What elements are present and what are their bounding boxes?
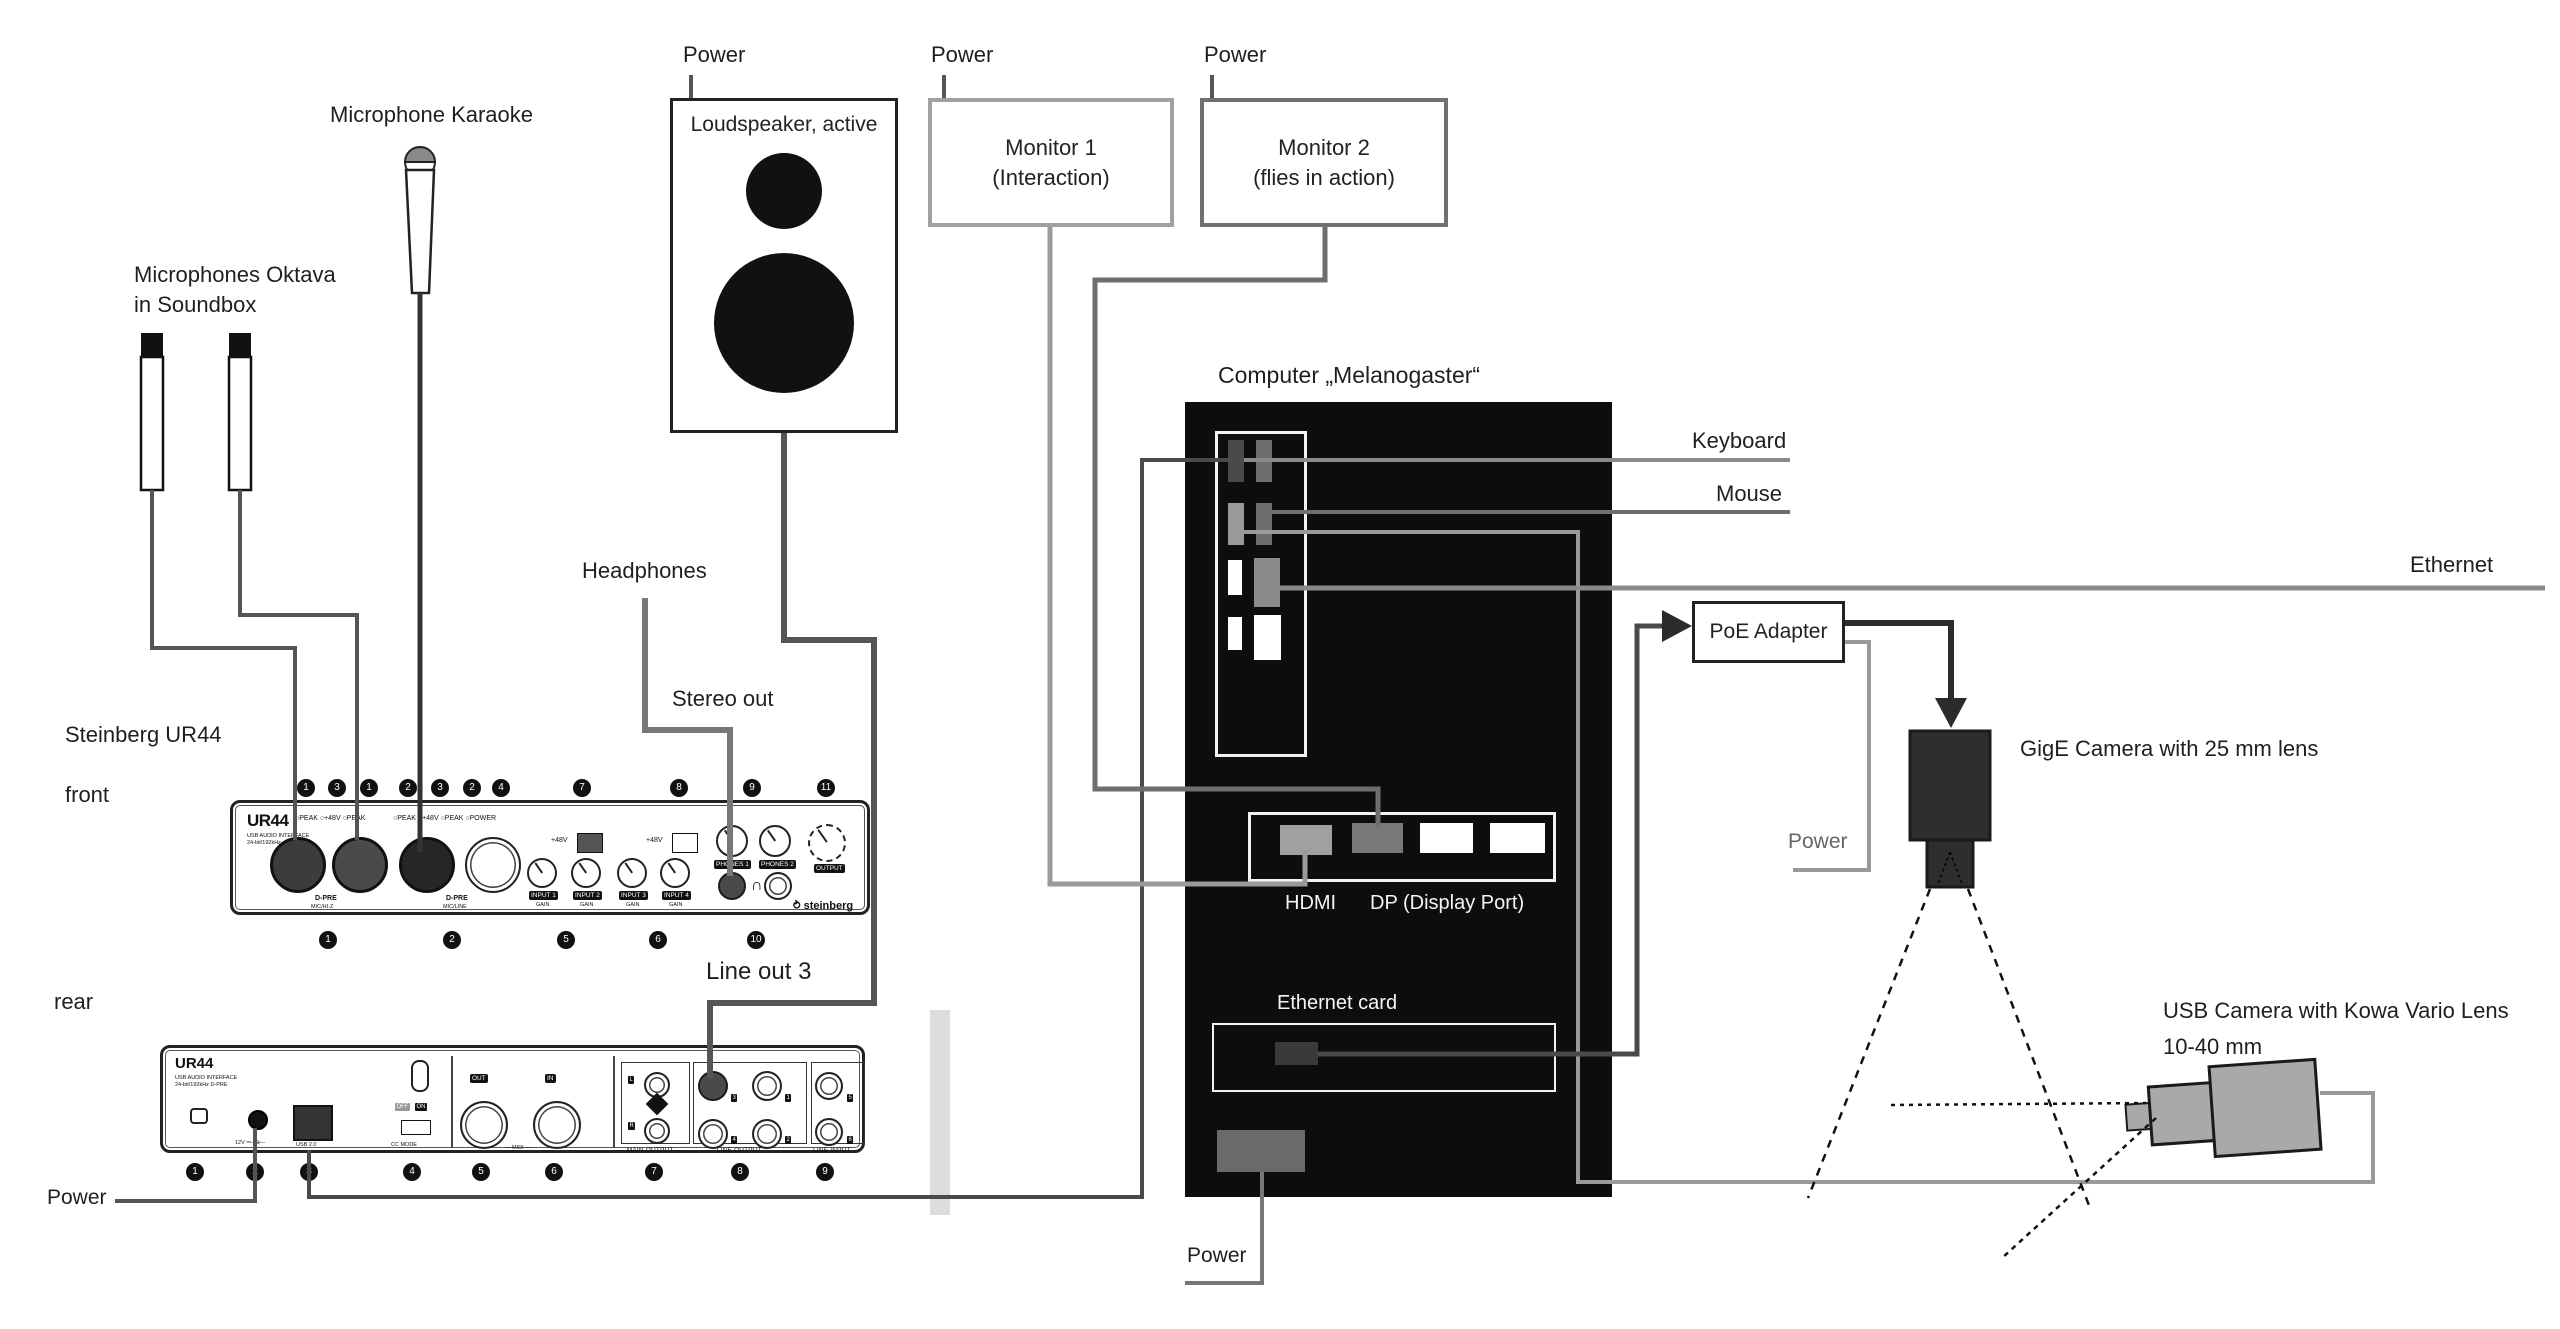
callout-front-top-6: 2 — [463, 779, 481, 797]
io-port-3a — [1228, 560, 1242, 595]
ethernet-card-port — [1275, 1042, 1318, 1065]
ccmode-off-tag: OFF — [395, 1103, 410, 1111]
gain4-label: GAIN — [669, 902, 682, 908]
label-stereo-out: Stereo out — [672, 686, 774, 712]
label-power-ur44: Power — [47, 1186, 107, 1210]
input2-gain-knob[interactable] — [571, 858, 601, 888]
phones2-tag: PHONES 2 — [759, 860, 796, 869]
callout-front-top-9: 8 — [670, 779, 688, 797]
label-ethernet-card: Ethernet card — [1277, 992, 1397, 1015]
main-l-tag: L — [628, 1076, 634, 1084]
callout-rear-5: 5 — [472, 1163, 490, 1181]
callout-front-top-10: 9 — [743, 779, 761, 797]
gige-camera — [1910, 731, 1990, 887]
input1-gain-knob[interactable] — [527, 858, 557, 888]
callout-rear-4: 4 — [403, 1163, 421, 1181]
label-dp: DP (Display Port) — [1370, 892, 1524, 915]
callout-front-top-5: 3 — [431, 779, 449, 797]
label-power-poe: Power — [1788, 830, 1848, 854]
input3-tag: INPUT 3 — [619, 891, 648, 900]
monitor2-box: Monitor 2 (flies in action) — [1200, 98, 1448, 227]
loudspeaker-label: Loudspeaker, active — [691, 113, 878, 137]
label-power-monitor1: Power — [931, 42, 993, 68]
phones1-tag: PHONES 1 — [714, 860, 751, 869]
monitor1-box: Monitor 1 (Interaction) — [928, 98, 1174, 227]
gpu-port-4 — [1490, 823, 1545, 853]
line-input-5-tag: 5 — [847, 1094, 853, 1102]
line-input-6-tag: 6 — [847, 1136, 853, 1144]
line-output-4[interactable] — [698, 1119, 728, 1149]
label-gige-camera: GigE Camera with 25 mm lens — [2020, 736, 2318, 762]
monitor2-line1: Monitor 2 — [1278, 133, 1370, 163]
label-power-speaker: Power — [683, 42, 745, 68]
headphone-glyph-icon: ∩ — [751, 877, 763, 895]
usbcam-axis-dotted — [1891, 1103, 2146, 1105]
rear-divider-2 — [613, 1056, 615, 1148]
callout-rear-6: 6 — [545, 1163, 563, 1181]
cable-mic1-to-xlr1 — [152, 490, 295, 840]
callout-front-top-4: 2 — [399, 779, 417, 797]
callout-front-bottom-2: 2 — [443, 931, 461, 949]
label-computer: Computer „Melanogaster“ — [1218, 362, 1480, 389]
front-brand-sub2: 24-bit/192kHz — [247, 840, 281, 846]
callout-rear-7: 7 — [645, 1163, 663, 1181]
cable-poe-to-gige — [1845, 623, 1951, 700]
label-mic-oktava-line2: in Soundbox — [134, 292, 256, 318]
rear-power-button[interactable] — [190, 1108, 208, 1124]
line-output-label: — LINE OUTPUT — — [708, 1147, 770, 1154]
rear-brand: UR44 — [175, 1055, 213, 1072]
label-power-monitor2: Power — [1204, 42, 1266, 68]
callout-front-top-2: 3 — [328, 779, 346, 797]
poe-adapter-box: PoE Adapter — [1692, 601, 1845, 663]
input4-tag: INPUT 4 — [662, 891, 691, 900]
dc-jack[interactable] — [248, 1110, 268, 1130]
gain3-label: GAIN — [626, 902, 639, 908]
usb-port-2a-camera — [1228, 503, 1244, 545]
line-output-2-tag: 2 — [785, 1136, 791, 1144]
arrowhead-into-poe — [1662, 610, 1692, 642]
callout-rear-1: 1 — [186, 1163, 204, 1181]
callout-front-bottom-1: 1 — [319, 931, 337, 949]
input4-gain-knob[interactable] — [660, 858, 690, 888]
dp-port — [1352, 823, 1403, 853]
main-output-label: — MAIN OUTPUT — — [618, 1147, 682, 1154]
oktava-mic-2 — [229, 333, 251, 490]
rear-divider-1 — [451, 1056, 453, 1148]
line-output-2[interactable] — [752, 1119, 782, 1149]
front-dpre-2: D-PRE — [446, 895, 468, 902]
input3-gain-knob[interactable] — [617, 858, 647, 888]
label-power-computer: Power — [1187, 1244, 1247, 1268]
speaker-tweeter — [746, 153, 822, 229]
label-ethernet: Ethernet — [2410, 552, 2493, 578]
output-knob[interactable] — [808, 824, 846, 862]
ccmode-on-tag: ON — [415, 1103, 427, 1111]
usbcam-ray-dotted — [2002, 1118, 2156, 1258]
poe-adapter-label: PoE Adapter — [1710, 620, 1828, 644]
front-leds-left: ○PEAK ○+48V ○PEAK — [295, 815, 365, 822]
rear-brand-sub2: 24-bit/192kHz D-PRE — [175, 1082, 228, 1088]
callout-rear-9: 9 — [816, 1163, 834, 1181]
label-keyboard: Keyboard — [1692, 428, 1786, 454]
label-mic-karaoke: Microphone Karaoke — [330, 102, 533, 128]
midi-label: — MIDI — — [505, 1145, 531, 1151]
callout-front-top-7: 4 — [492, 779, 510, 797]
gige-fov-right — [1968, 889, 2090, 1208]
input1-tag: INPUT 1 — [529, 891, 558, 900]
callout-front-top-3: 1 — [360, 779, 378, 797]
ur44-front-panel: UR44 USB AUDIO INTERFACE 24-bit/192kHz ○… — [230, 800, 870, 915]
callout-front-top-1: 1 — [297, 779, 315, 797]
karaoke-mic — [405, 147, 435, 293]
steinberg-logo-text: steinberg — [804, 900, 854, 912]
kensington-slot — [411, 1060, 429, 1092]
phones1-knob[interactable] — [716, 825, 748, 857]
callout-front-bottom-5: 10 — [747, 931, 765, 949]
phones1-jack[interactable] — [718, 872, 746, 900]
line-output-1-tag: 1 — [785, 1094, 791, 1102]
xlr-jack-3[interactable] — [399, 837, 455, 893]
front-48v-label-1: +48V — [551, 837, 568, 844]
usb2-label: USB 2.0 — [296, 1142, 316, 1148]
line-output-3-tag: 3 — [731, 1094, 737, 1102]
main-r-tag: R — [628, 1122, 635, 1130]
line-output-1[interactable] — [752, 1071, 782, 1101]
light-band — [930, 1010, 950, 1215]
steinberg-logo-icon: ⥁ steinberg — [793, 899, 853, 912]
xlr-jack-1[interactable] — [270, 837, 326, 893]
usb-port-2b-mouse — [1256, 503, 1272, 545]
gain1-label: GAIN — [536, 902, 549, 908]
front-48v-switch-1[interactable] — [577, 833, 603, 853]
label-mouse: Mouse — [1716, 481, 1782, 507]
front-48v-switch-2[interactable] — [672, 833, 698, 853]
front-micline: MIC/LINE — [443, 904, 467, 910]
io-port-4a — [1228, 617, 1242, 650]
oktava-mic-1 — [141, 333, 163, 490]
callout-front-top-8: 7 — [573, 779, 591, 797]
io-port-4b — [1254, 615, 1281, 660]
line-output-4-tag: 4 — [731, 1136, 737, 1144]
gpu-port-3 — [1420, 823, 1473, 853]
main-output-r[interactable] — [644, 1118, 670, 1144]
midi-in-tag: IN — [545, 1074, 556, 1083]
usb-port-1b-keyboard — [1256, 440, 1272, 482]
callout-front-bottom-3: 5 — [557, 931, 575, 949]
callout-front-top-11: 11 — [817, 779, 835, 797]
label-mic-oktava-line1: Microphones Oktava — [134, 262, 336, 288]
speaker-woofer — [714, 253, 854, 393]
monitor1-line2: (Interaction) — [992, 163, 1109, 193]
midi-out-tag: OUT — [470, 1074, 488, 1083]
xlr-jack-4[interactable] — [465, 837, 521, 893]
label-headphones: Headphones — [582, 558, 707, 584]
dc-label: 12V ⎓—⊕— — [235, 1140, 265, 1147]
label-usb-camera-line1: USB Camera with Kowa Vario Lens — [2163, 998, 2509, 1024]
label-line-out-3: Line out 3 — [706, 958, 811, 986]
usb-port-1a — [1228, 440, 1244, 482]
front-48v-label-2: +48V — [646, 837, 663, 844]
rear-brand-sub1: USB AUDIO INTERFACE — [175, 1075, 237, 1081]
phones2-jack[interactable] — [764, 872, 792, 900]
label-rear: rear — [54, 989, 93, 1015]
xlr-jack-2[interactable] — [332, 837, 388, 893]
midi-out-din[interactable] — [460, 1101, 508, 1149]
line-input-6[interactable] — [815, 1118, 843, 1146]
ccmode-switch[interactable] — [401, 1120, 431, 1135]
usb-camera — [2123, 1059, 2321, 1162]
line-input-label: LINE INPUT — [813, 1147, 851, 1154]
monitor1-line1: Monitor 1 — [1005, 133, 1097, 163]
gain2-label: GAIN — [580, 902, 593, 908]
ethernet-port — [1254, 558, 1280, 607]
line-output-3[interactable] — [698, 1071, 728, 1101]
front-brand: UR44 — [247, 811, 288, 831]
ur44-rear-panel: UR44 USB AUDIO INTERFACE 24-bit/192kHz D… — [160, 1045, 865, 1153]
label-usb-camera-line2: 10-40 mm — [2163, 1034, 2262, 1060]
gige-fov-left — [1808, 889, 1930, 1198]
front-dpre-1: D-PRE — [315, 895, 337, 902]
front-michiz: MIC/HI-Z — [311, 904, 333, 910]
input2-tag: INPUT 2 — [573, 891, 602, 900]
ccmode-label: CC MODE — [391, 1142, 417, 1148]
output-tag: OUTPUT — [814, 864, 845, 873]
callout-rear-8: 8 — [731, 1163, 749, 1181]
line-input-5[interactable] — [815, 1072, 843, 1100]
front-leds-right: ○PEAK ○+48V ○PEAK ○POWER — [393, 815, 496, 822]
computer-tower: HDMI DP (Display Port) Ethernet card — [1185, 402, 1612, 1197]
arrowhead-into-gige — [1935, 698, 1967, 728]
callout-rear-3: 3 — [300, 1163, 318, 1181]
diagram-canvas: Microphones Oktava in Soundbox Microphon… — [0, 0, 2560, 1329]
ethernet-card-box — [1212, 1023, 1556, 1092]
label-front: front — [65, 782, 109, 808]
midi-in-din[interactable] — [533, 1101, 581, 1149]
usb2-port[interactable] — [293, 1105, 333, 1141]
psu-connector — [1217, 1130, 1305, 1172]
phones2-knob[interactable] — [759, 825, 791, 857]
callout-front-bottom-4: 6 — [649, 931, 667, 949]
callout-rear-2: 2 — [246, 1163, 264, 1181]
monitor2-line2: (flies in action) — [1253, 163, 1395, 193]
hdmi-port — [1280, 825, 1332, 855]
label-hdmi: HDMI — [1285, 892, 1336, 915]
label-steinberg-ur44: Steinberg UR44 — [65, 722, 222, 748]
